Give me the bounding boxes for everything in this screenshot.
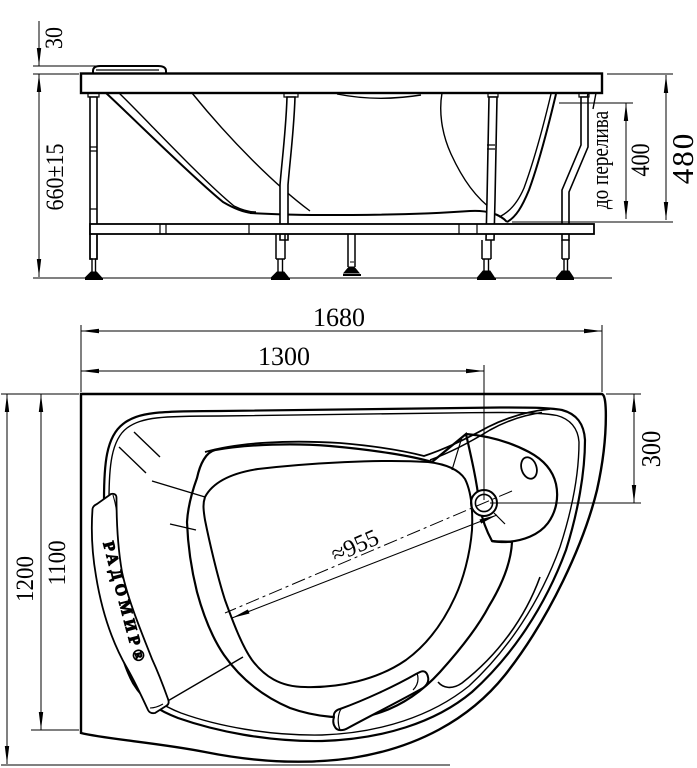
svg-text:1200: 1200 (12, 556, 39, 602)
svg-text:400: 400 (627, 143, 655, 176)
svg-text:660±15: 660±15 (42, 143, 70, 210)
svg-text:до перелива: до перелива (587, 111, 614, 210)
svg-text:480: 480 (665, 132, 697, 185)
svg-text:1680: 1680 (313, 303, 365, 332)
svg-text:1100: 1100 (44, 540, 71, 585)
svg-text:1300: 1300 (258, 342, 310, 371)
svg-text:300: 300 (636, 431, 666, 467)
svg-text:30: 30 (41, 27, 69, 49)
